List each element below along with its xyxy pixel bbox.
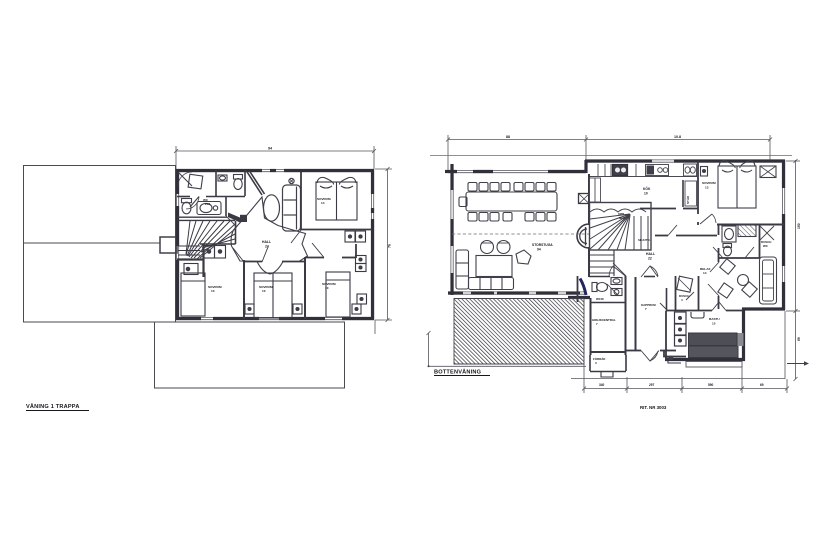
svg-text:7: 7 — [645, 307, 647, 311]
svg-text:24: 24 — [265, 245, 269, 249]
svg-text:STÄD: STÄD — [686, 195, 690, 204]
svg-text:NED: NED — [619, 216, 626, 220]
svg-text:7: 7 — [596, 322, 598, 326]
svg-text:76: 76 — [388, 244, 392, 248]
svg-text:10.8: 10.8 — [674, 135, 681, 139]
svg-text:15: 15 — [712, 322, 716, 326]
svg-text:14: 14 — [703, 271, 707, 275]
svg-text:10: 10 — [325, 286, 329, 290]
svg-text:WC/D: WC/D — [596, 297, 604, 301]
svg-text:69: 69 — [760, 383, 764, 387]
svg-text:BOTTENVÅNING: BOTTENVÅNING — [434, 369, 481, 376]
svg-text:297: 297 — [649, 383, 655, 387]
svg-text:2x2: 2x2 — [205, 202, 210, 206]
svg-text:94: 94 — [268, 147, 272, 151]
svg-text:94: 94 — [537, 248, 541, 252]
svg-text:14: 14 — [321, 201, 325, 205]
svg-text:KAPPRUM: KAPPRUM — [641, 303, 656, 307]
svg-text:KÖK: KÖK — [643, 187, 651, 191]
svg-text:HALL: HALL — [646, 252, 655, 256]
svg-text:HALL: HALL — [262, 240, 271, 244]
svg-text:RIT. NR 3003: RIT. NR 3003 — [640, 405, 667, 410]
svg-text:4: 4 — [681, 298, 683, 302]
svg-text:69: 69 — [797, 337, 801, 341]
svg-text:22: 22 — [648, 257, 652, 261]
svg-text:10: 10 — [262, 289, 266, 293]
svg-text:WC: WC — [763, 244, 769, 248]
svg-text:340: 340 — [599, 383, 605, 387]
svg-text:VÅNING 1 TRAPPA: VÅNING 1 TRAPPA — [26, 403, 80, 410]
svg-text:STORSTUGA: STORSTUGA — [532, 243, 553, 247]
svg-text:88: 88 — [506, 135, 510, 139]
svg-text:SOVRUM: SOVRUM — [702, 181, 716, 185]
svg-text:13: 13 — [705, 186, 709, 190]
svg-text:SKJUTD.: SKJUTD. — [638, 238, 651, 242]
svg-text:590: 590 — [708, 383, 714, 387]
svg-text:10: 10 — [211, 289, 215, 293]
svg-text:3: 3 — [595, 361, 597, 365]
svg-text:150: 150 — [797, 223, 801, 229]
svg-text:10: 10 — [644, 192, 648, 196]
svg-text:BASTU: BASTU — [709, 317, 720, 321]
